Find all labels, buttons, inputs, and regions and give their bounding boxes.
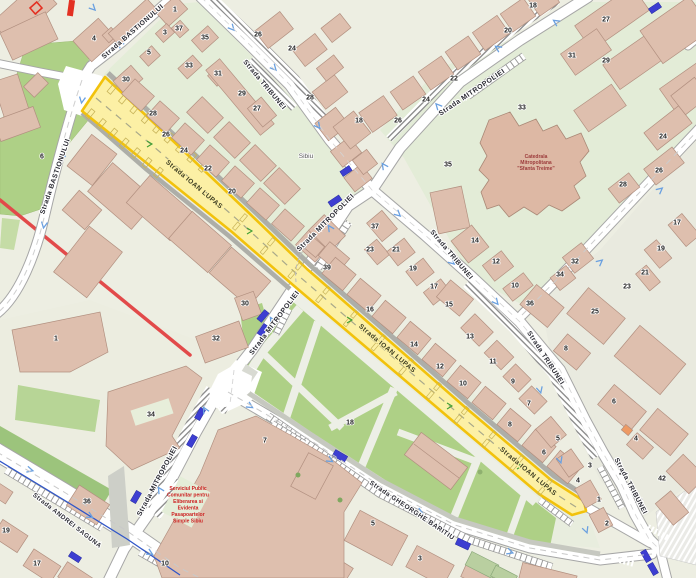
svg-text:1: 1 bbox=[54, 336, 58, 343]
svg-text:Eliberarea si: Eliberarea si bbox=[173, 499, 203, 505]
svg-text:15: 15 bbox=[445, 302, 453, 309]
svg-text:20: 20 bbox=[228, 189, 236, 196]
svg-text:7: 7 bbox=[263, 438, 267, 445]
svg-text:17: 17 bbox=[673, 220, 681, 227]
svg-text:16: 16 bbox=[366, 307, 374, 314]
svg-text:9: 9 bbox=[511, 379, 515, 386]
svg-text:28: 28 bbox=[149, 111, 157, 118]
svg-text:5: 5 bbox=[556, 436, 560, 443]
svg-text:24: 24 bbox=[180, 148, 188, 155]
svg-text:22: 22 bbox=[450, 76, 458, 83]
svg-text:6: 6 bbox=[612, 399, 616, 406]
svg-text:3: 3 bbox=[163, 30, 167, 37]
svg-text:26: 26 bbox=[394, 118, 402, 125]
svg-text:32: 32 bbox=[571, 259, 579, 266]
svg-text:17: 17 bbox=[33, 561, 41, 568]
svg-text:6: 6 bbox=[542, 450, 546, 457]
svg-text:10: 10 bbox=[161, 561, 169, 568]
svg-text:31: 31 bbox=[214, 71, 222, 78]
svg-text:12: 12 bbox=[436, 364, 444, 371]
svg-text:36: 36 bbox=[526, 301, 534, 308]
svg-text:Serviciul Public: Serviciul Public bbox=[169, 486, 206, 492]
svg-text:36: 36 bbox=[83, 499, 91, 506]
svg-text:2: 2 bbox=[605, 521, 609, 528]
svg-text:42: 42 bbox=[658, 476, 666, 483]
svg-text:26: 26 bbox=[162, 132, 170, 139]
svg-text:27: 27 bbox=[602, 17, 610, 24]
svg-text:33: 33 bbox=[518, 105, 526, 112]
svg-text:1: 1 bbox=[173, 7, 177, 14]
svg-text:30: 30 bbox=[122, 77, 130, 84]
svg-text:33: 33 bbox=[185, 63, 193, 70]
svg-text:"Sfanta Treime": "Sfanta Treime" bbox=[517, 166, 555, 172]
svg-text:24: 24 bbox=[288, 46, 296, 53]
svg-text:4: 4 bbox=[576, 478, 580, 485]
svg-text:39: 39 bbox=[323, 265, 331, 272]
svg-text:37: 37 bbox=[371, 224, 379, 231]
svg-text:18: 18 bbox=[346, 420, 354, 427]
svg-text:Evidenta: Evidenta bbox=[178, 506, 199, 512]
svg-text:32: 32 bbox=[212, 336, 220, 343]
svg-text:12: 12 bbox=[492, 259, 500, 266]
svg-text:35: 35 bbox=[201, 35, 209, 42]
svg-text:24: 24 bbox=[422, 97, 430, 104]
svg-text:23: 23 bbox=[366, 247, 374, 254]
svg-text:7: 7 bbox=[527, 401, 531, 408]
svg-text:31: 31 bbox=[568, 53, 576, 60]
svg-text:18: 18 bbox=[529, 3, 537, 10]
svg-text:18: 18 bbox=[355, 118, 363, 125]
svg-text:27: 27 bbox=[253, 106, 261, 113]
svg-text:19: 19 bbox=[409, 266, 417, 273]
svg-text:34: 34 bbox=[147, 412, 155, 419]
svg-text:8: 8 bbox=[564, 346, 568, 353]
svg-text:6: 6 bbox=[40, 154, 44, 161]
svg-text:20: 20 bbox=[504, 28, 512, 35]
svg-text:14: 14 bbox=[471, 238, 479, 245]
svg-text:30: 30 bbox=[241, 301, 249, 308]
svg-text:35: 35 bbox=[444, 162, 452, 169]
svg-text:28: 28 bbox=[306, 95, 314, 102]
svg-text:Sibiu: Sibiu bbox=[299, 153, 314, 160]
svg-text:28: 28 bbox=[619, 182, 627, 189]
svg-text:3: 3 bbox=[588, 463, 592, 470]
svg-text:10: 10 bbox=[459, 381, 467, 388]
svg-text:Pasapoartelor: Pasapoartelor bbox=[171, 512, 204, 518]
svg-text:Simple Sibiu: Simple Sibiu bbox=[173, 519, 203, 525]
svg-text:4: 4 bbox=[634, 436, 638, 443]
svg-text:17: 17 bbox=[430, 284, 438, 291]
svg-text:19: 19 bbox=[2, 528, 10, 535]
svg-text:29: 29 bbox=[238, 91, 246, 98]
svg-text:4: 4 bbox=[92, 36, 96, 43]
svg-text:23: 23 bbox=[623, 284, 631, 291]
svg-text:25: 25 bbox=[591, 309, 599, 316]
svg-text:37: 37 bbox=[175, 26, 183, 33]
svg-text:26: 26 bbox=[254, 32, 262, 39]
svg-text:13: 13 bbox=[466, 334, 474, 341]
svg-text:34: 34 bbox=[556, 272, 564, 279]
svg-text:26: 26 bbox=[655, 168, 663, 175]
svg-text:14: 14 bbox=[410, 342, 418, 349]
svg-text:1: 1 bbox=[597, 497, 601, 504]
svg-text:21: 21 bbox=[641, 270, 649, 277]
svg-text:29: 29 bbox=[602, 58, 610, 65]
svg-text:19: 19 bbox=[657, 246, 665, 253]
svg-text:24: 24 bbox=[659, 134, 667, 141]
svg-text:8: 8 bbox=[508, 422, 512, 429]
svg-text:10: 10 bbox=[511, 283, 519, 290]
svg-text:11: 11 bbox=[489, 359, 497, 366]
svg-text:21: 21 bbox=[392, 247, 400, 254]
svg-text:5: 5 bbox=[371, 521, 375, 528]
svg-text:22: 22 bbox=[204, 166, 212, 173]
svg-text:Comunitar pentru: Comunitar pentru bbox=[167, 493, 209, 499]
svg-text:3: 3 bbox=[418, 556, 422, 563]
svg-text:5: 5 bbox=[147, 50, 151, 57]
